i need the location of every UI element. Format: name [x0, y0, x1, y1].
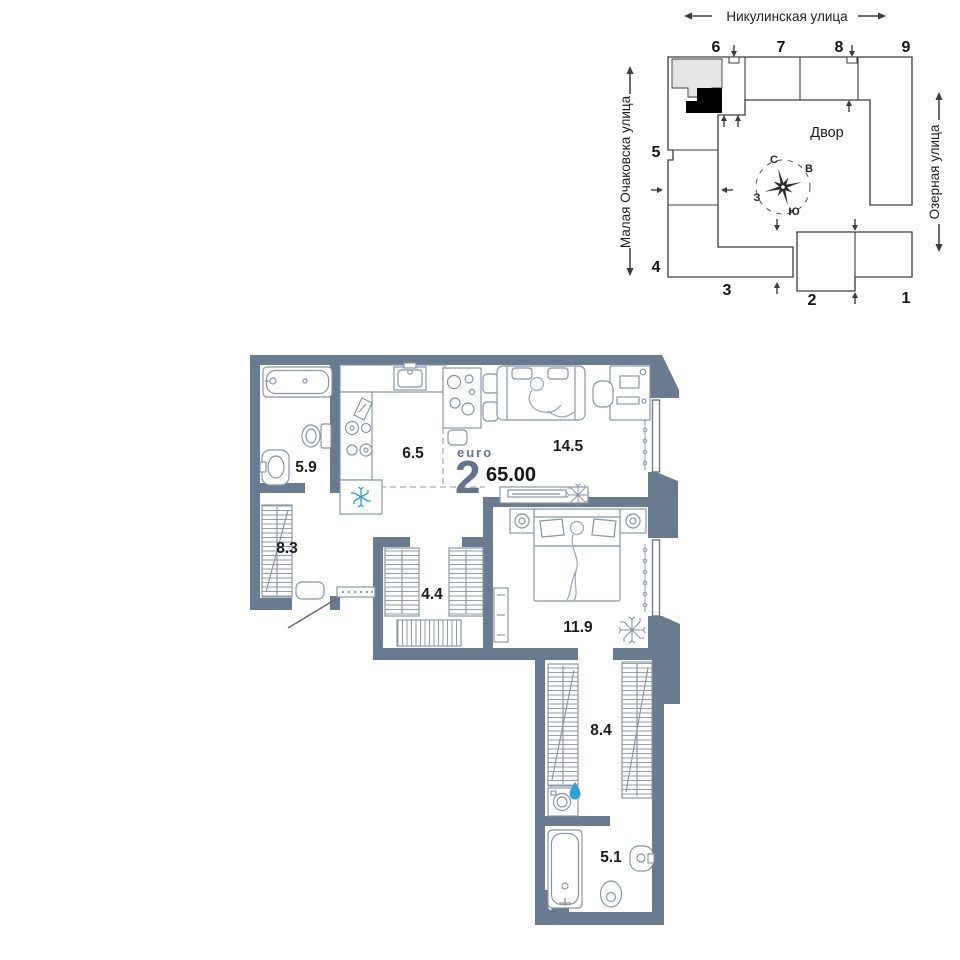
- compass-rose-icon: С В Ю З: [754, 154, 813, 218]
- street-arrow-down-icon: [626, 248, 633, 276]
- entrance-arrow-icon: [849, 45, 855, 57]
- compass-east-label: В: [805, 163, 813, 175]
- bathtub: [548, 830, 582, 908]
- unit-total-area: 65.00: [486, 464, 536, 486]
- section-number-1: 1: [902, 290, 911, 307]
- chair: [448, 430, 467, 445]
- window-bedroom: [653, 540, 660, 616]
- sink: [260, 450, 289, 485]
- chair: [483, 402, 498, 421]
- entrance-arrow-icon: [731, 45, 737, 57]
- section-number-7: 7: [777, 39, 786, 56]
- nightstand: [620, 509, 646, 533]
- entrance-arrow-icon: [735, 115, 741, 127]
- street-arrow-down-icon: [935, 224, 942, 252]
- room-label-bathroom-1: 5.9: [295, 459, 317, 476]
- double-bed: [534, 509, 620, 601]
- section-number-3: 3: [723, 282, 732, 299]
- sink: [630, 846, 654, 871]
- toilet: [601, 881, 622, 907]
- chair: [483, 374, 498, 393]
- street-name-top: Никулинская улица: [726, 9, 848, 24]
- street-arrow-up-icon: [626, 66, 633, 94]
- unit-rooms-count: 2: [455, 451, 481, 503]
- floorplan-page: С В Ю З Никулинская улица Малая Очаковск…: [0, 0, 960, 960]
- section-number-2: 2: [808, 292, 817, 309]
- apartment-floor-plan: 5.9 6.5 14.5 8.3 4.4 11.9 8.4 5.1 euro 2…: [250, 355, 680, 925]
- room-label-bedroom: 11.9: [563, 619, 593, 636]
- desk-chair: [593, 381, 613, 407]
- section-number-4: 4: [652, 259, 661, 276]
- street-arrow-right-icon: [858, 12, 886, 19]
- nightstand: [510, 509, 534, 533]
- entrance-arrow-icon: [774, 219, 780, 231]
- room-label-closet: 4.4: [421, 586, 443, 603]
- compass-south-label: Ю: [788, 206, 799, 218]
- street-name-left: Малая Очаковска улица: [618, 95, 633, 248]
- window-living-room: [653, 400, 660, 472]
- section-number-5: 5: [652, 144, 661, 161]
- radiator: [643, 544, 647, 612]
- sofa: [497, 366, 585, 420]
- door-swing-line: [288, 599, 336, 628]
- room-label-hallway: 8.3: [276, 540, 298, 557]
- room-label-living-room: 14.5: [553, 438, 584, 455]
- entrance-arrow-icon: [774, 282, 780, 294]
- courtyard-label: Двор: [810, 125, 844, 141]
- street-name-right: Озерная улица: [927, 124, 942, 219]
- tv-stand-bedroom: [494, 588, 508, 642]
- bathtub: [263, 367, 332, 397]
- room-label-bathroom-2: 5.1: [600, 849, 622, 866]
- desk: [610, 366, 650, 420]
- compass-west-label: З: [754, 192, 761, 204]
- entrance-notch: [847, 57, 857, 63]
- entrance-arrow-icon: [721, 115, 727, 127]
- hallway-bench: [296, 582, 324, 599]
- room-label-corridor: 8.4: [590, 722, 612, 739]
- toilet: [302, 424, 331, 448]
- section-number-9: 9: [902, 39, 911, 56]
- room-label-kitchen: 6.5: [402, 445, 424, 462]
- shoe-rack: [397, 620, 461, 646]
- entrance-arrow-icon: [651, 187, 663, 193]
- plant-icon: [619, 617, 645, 643]
- site-plan: С В Ю З Никулинская улица Малая Очаковск…: [618, 9, 943, 309]
- section-number-6: 6: [712, 39, 721, 56]
- entrance-arrow-icon: [852, 292, 858, 304]
- entrance-notch: [729, 57, 739, 63]
- street-arrow-up-icon: [935, 92, 942, 120]
- kitchen-sink: [394, 363, 426, 390]
- entrance-arrow-icon: [846, 100, 852, 112]
- compass-north-label: С: [770, 154, 778, 166]
- section-number-8: 8: [835, 39, 844, 56]
- street-arrow-left-icon: [684, 12, 712, 19]
- dining-table: [443, 368, 498, 445]
- entrance-arrow-icon: [721, 187, 733, 193]
- fridge: [340, 480, 382, 514]
- entrance-arrow-icon: [852, 219, 858, 231]
